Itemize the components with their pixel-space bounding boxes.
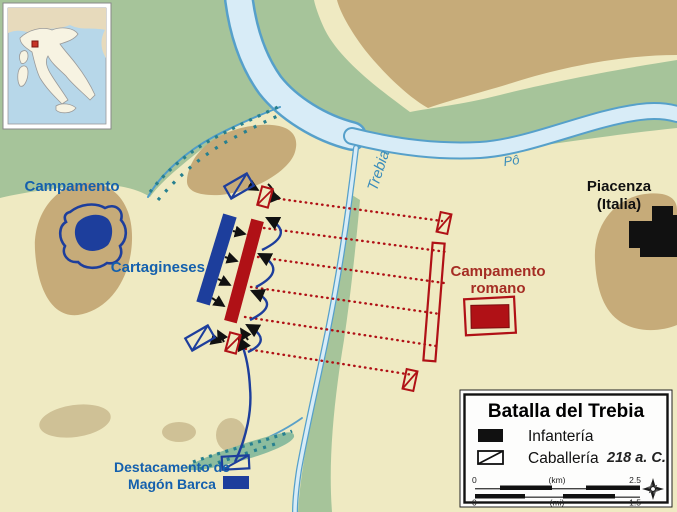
scale-mi-start: 0 — [472, 498, 477, 508]
label-roman-camp-1: Campamento — [450, 263, 545, 280]
scale-km-end: 2.5 — [629, 475, 641, 485]
scale-mi-end: 1.5 — [629, 498, 641, 508]
scale-km-start: 0 — [472, 475, 477, 485]
infantry-symbol-icon — [478, 429, 503, 442]
legend-infantry-label: Infantería — [528, 428, 594, 445]
inset-battle-location-marker — [32, 41, 38, 47]
label-roman-camp-2: romano — [470, 280, 525, 297]
battle-map: Campamento Cartagineses Campamento roman… — [0, 0, 677, 512]
label-river-po: Pô — [502, 152, 520, 169]
label-carthaginian-camp: Campamento — [24, 178, 119, 195]
battle-map-screenshot: Campamento Cartagineses Campamento roman… — [0, 0, 677, 512]
legend-year: 218 a. C. — [606, 450, 666, 466]
label-mago-detachment-2: Magón Barca — [128, 476, 216, 492]
legend-cavalry-label: Caballería — [528, 450, 599, 467]
label-carthaginians: Cartagineses — [111, 259, 205, 276]
italy-locator-inset — [3, 3, 111, 129]
label-piacenza-1: Piacenza — [587, 178, 652, 195]
label-mago-detachment-1: Destacamento de — [114, 459, 230, 475]
cavalry-symbol-icon — [478, 451, 503, 464]
scale-km-unit: (km) — [549, 475, 566, 485]
legend: Batalla del Trebia Infantería Caballería… — [460, 390, 672, 508]
scale-mi-unit: (mi) — [550, 498, 565, 508]
legend-title: Batalla del Trebia — [488, 401, 645, 422]
label-piacenza-2: (Italia) — [597, 196, 641, 213]
